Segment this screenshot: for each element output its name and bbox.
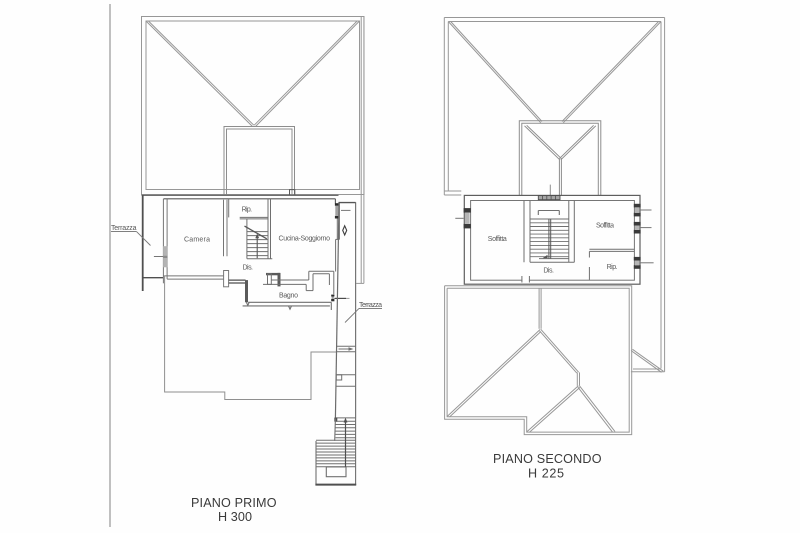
svg-text:Dis.: Dis. xyxy=(243,265,254,272)
svg-text:PIANO PRIMO: PIANO PRIMO xyxy=(191,496,277,510)
svg-text:Bagno: Bagno xyxy=(279,292,298,299)
svg-text:Rip.: Rip. xyxy=(242,207,253,214)
svg-text:Soffitta: Soffitta xyxy=(596,223,614,230)
svg-text:Camera: Camera xyxy=(184,237,210,244)
svg-text:Dis.: Dis. xyxy=(543,267,554,274)
svg-text:Cucina-Soggiorno: Cucina-Soggiorno xyxy=(279,235,331,242)
svg-text:H 225: H 225 xyxy=(528,467,564,481)
svg-text:Rip.: Rip. xyxy=(607,264,618,271)
svg-text:H 300: H 300 xyxy=(218,510,252,524)
svg-text:Terrazza: Terrazza xyxy=(359,302,382,309)
svg-text:PIANO SECONDO: PIANO SECONDO xyxy=(493,452,602,466)
svg-text:Terrazza: Terrazza xyxy=(111,225,137,232)
svg-text:Soffitta: Soffitta xyxy=(488,236,507,243)
